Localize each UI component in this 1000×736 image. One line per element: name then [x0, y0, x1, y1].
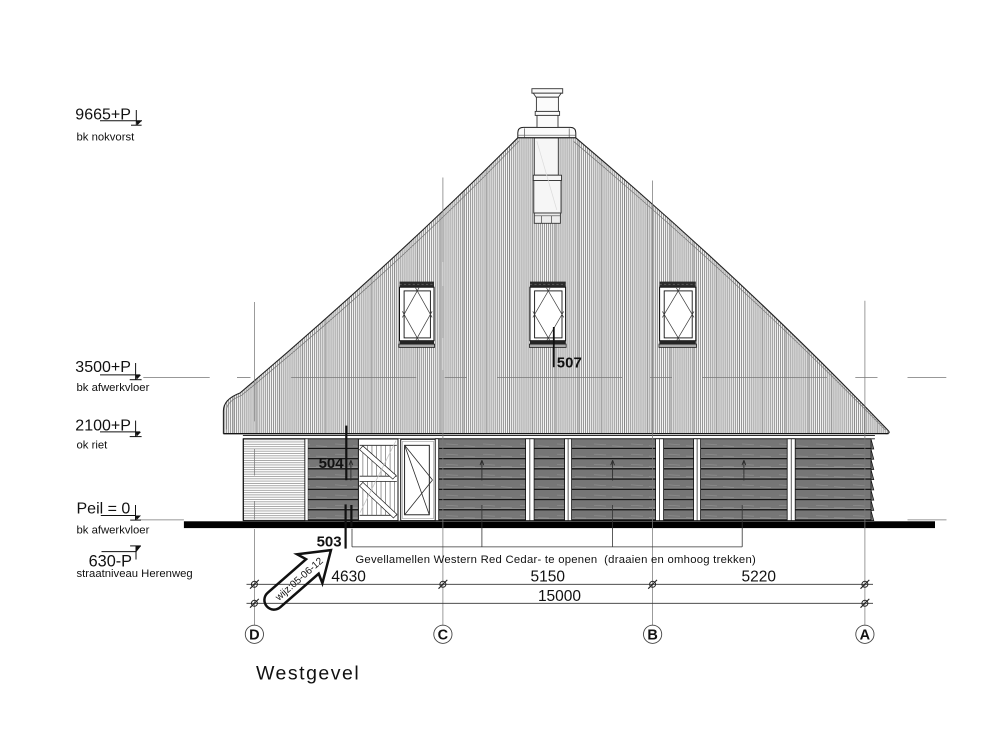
svg-text:bk afwerkvloer: bk afwerkvloer	[77, 382, 150, 394]
svg-text:15000: 15000	[538, 588, 581, 605]
svg-text:straatniveau Herenweg: straatniveau Herenweg	[77, 568, 193, 580]
svg-text:504: 504	[319, 455, 345, 472]
svg-text:503: 503	[317, 534, 342, 551]
svg-text:bk afwerkvloer: bk afwerkvloer	[77, 525, 150, 537]
svg-text:3500+P: 3500+P	[75, 359, 131, 376]
svg-text:A: A	[860, 628, 871, 644]
svg-text:bk nokvorst: bk nokvorst	[77, 132, 136, 144]
svg-text:Westgevel: Westgevel	[256, 663, 360, 685]
svg-text:D: D	[249, 628, 259, 644]
svg-text:ok riet: ok riet	[77, 440, 109, 452]
svg-text:C: C	[438, 628, 449, 644]
svg-text:4630: 4630	[331, 568, 366, 585]
svg-text:Gevellamellen Western Red Ceda: Gevellamellen Western Red Cedar- te open…	[355, 554, 756, 566]
svg-text:5220: 5220	[742, 568, 777, 585]
svg-text:B: B	[647, 628, 657, 644]
svg-text:5150: 5150	[531, 568, 566, 585]
svg-text:507: 507	[557, 355, 582, 372]
